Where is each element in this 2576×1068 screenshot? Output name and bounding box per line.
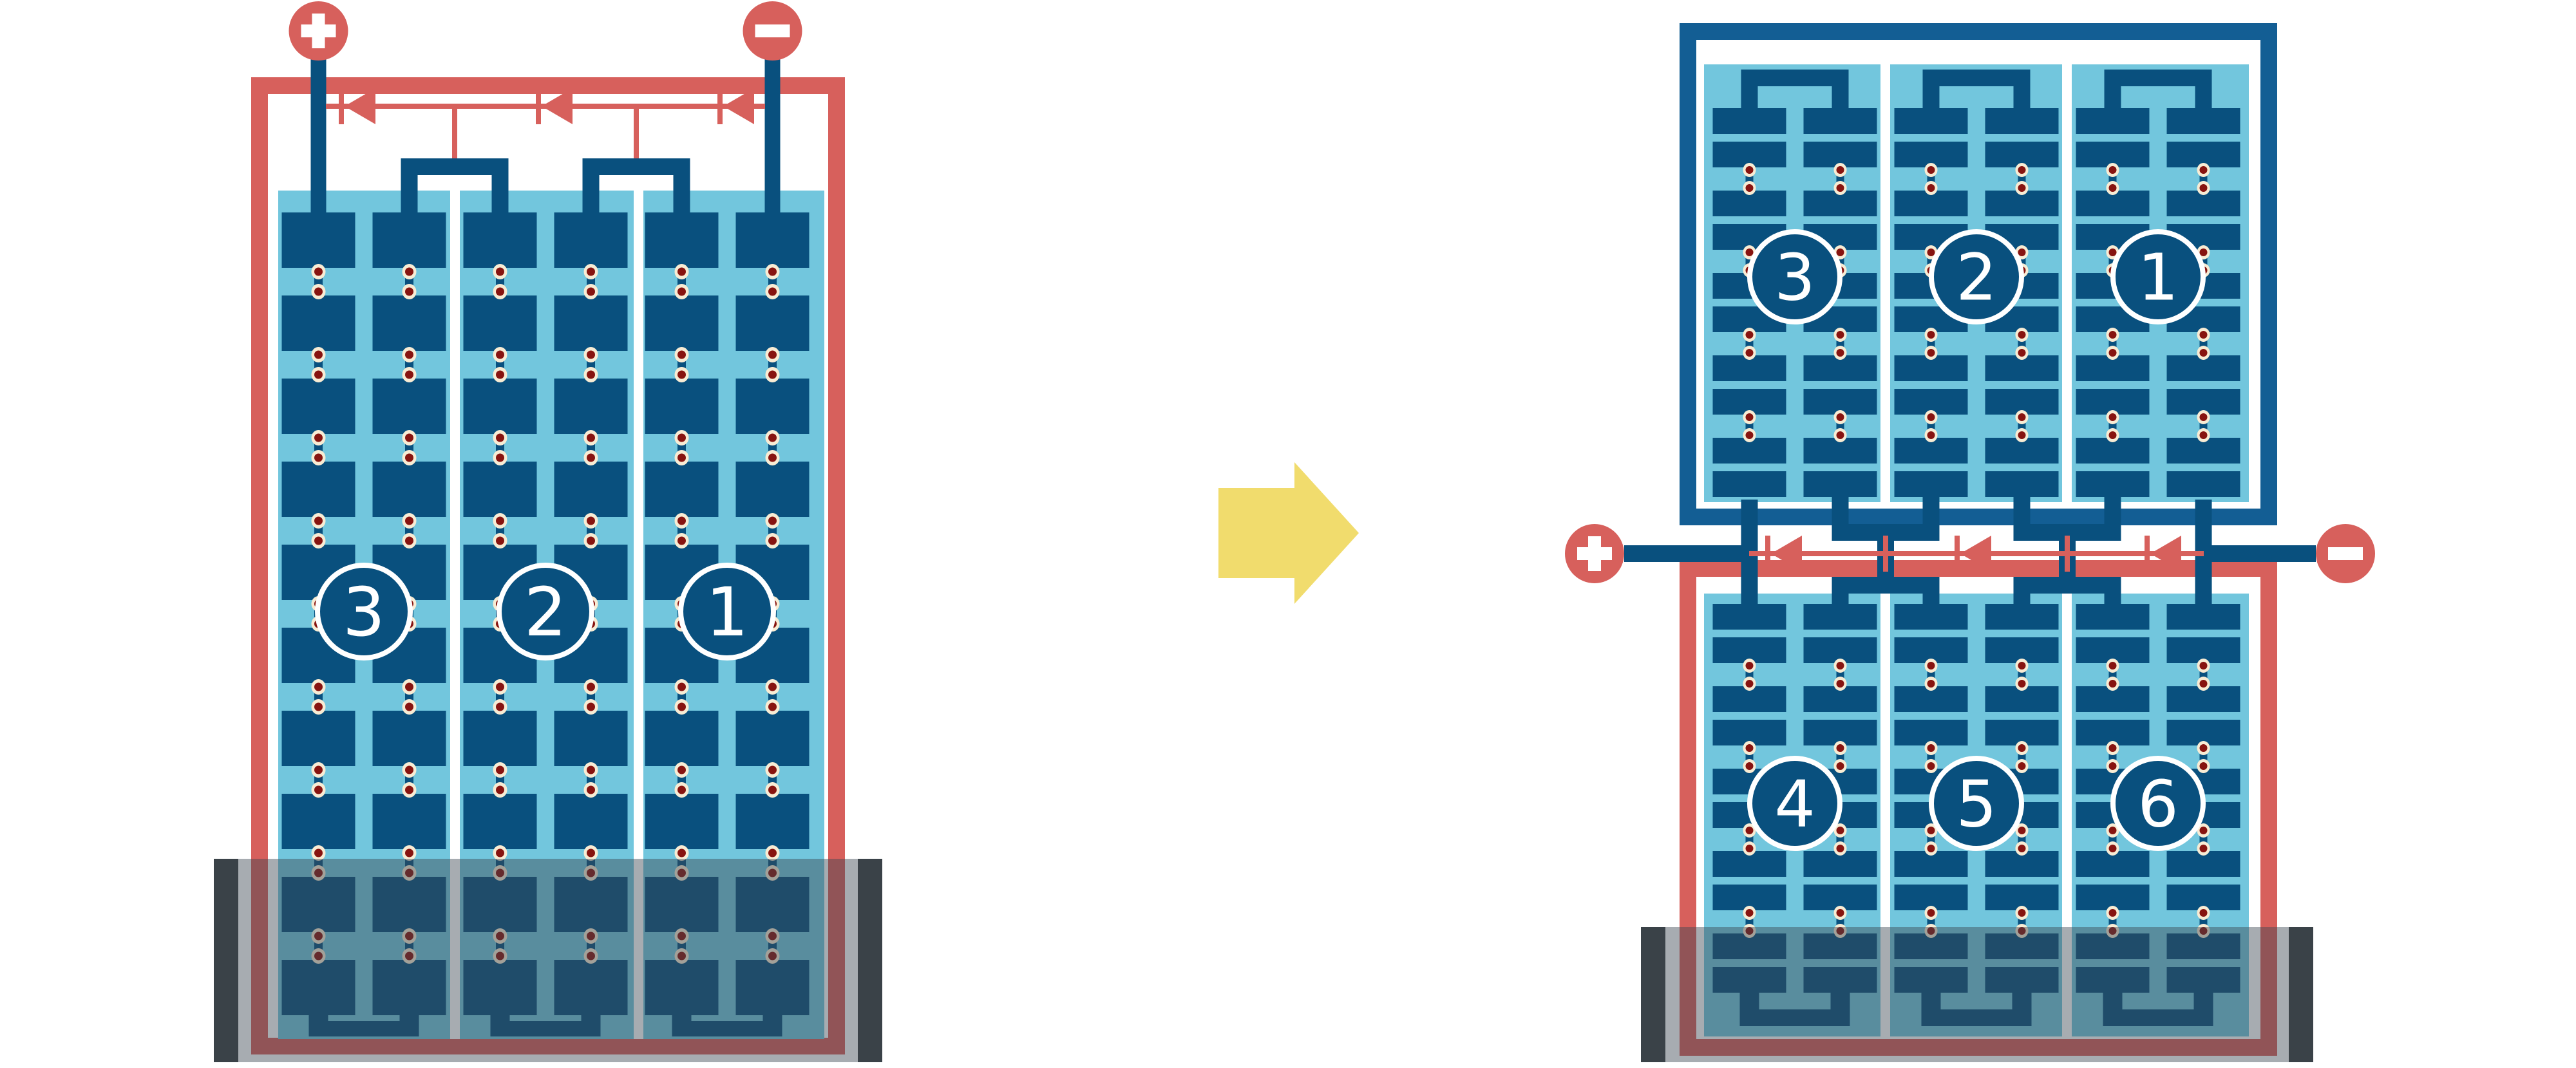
solar-cell <box>282 295 355 351</box>
solder-dot-icon <box>2018 662 2026 670</box>
string-number-label: 1 <box>706 573 748 651</box>
solder-dot-icon <box>2018 349 2026 357</box>
half-cell <box>2076 604 2150 630</box>
bypass-diode-cathode-bar <box>717 88 723 124</box>
half-cell <box>2167 108 2240 134</box>
plus-terminal-wire <box>311 58 327 227</box>
solder-dot-icon <box>1927 248 1935 256</box>
solder-dot-icon <box>2200 166 2208 174</box>
inter-string-bridge <box>492 174 509 221</box>
solder-dot-icon <box>2200 845 2208 852</box>
solder-dot-icon <box>1837 413 1844 421</box>
solder-dot-icon <box>1746 762 1754 770</box>
inter-string-bridge <box>401 174 418 221</box>
plus-icon <box>312 14 325 48</box>
solder-dot-icon <box>2109 248 2117 256</box>
arrow-head <box>1294 462 1359 604</box>
solder-dot-icon <box>587 849 595 857</box>
solder-dot-icon <box>587 517 595 525</box>
inter-string-bridge <box>674 174 690 221</box>
solder-dot-icon <box>1837 248 1844 256</box>
solder-dot-icon <box>314 766 323 774</box>
solder-dot-icon <box>496 268 504 276</box>
inter-string-bridge <box>2105 592 2121 606</box>
solder-dot-icon <box>677 268 686 276</box>
string-number-label: 2 <box>524 573 567 651</box>
solder-dot-icon <box>2109 662 2117 670</box>
solder-dot-icon <box>1746 662 1754 670</box>
solder-dot-icon <box>677 517 686 525</box>
arrow-body <box>1218 488 1296 578</box>
solder-dot-icon <box>405 766 413 774</box>
solar-cell <box>464 295 537 351</box>
half-cell <box>2076 471 2150 497</box>
solder-dot-icon <box>1927 680 1935 688</box>
solder-dot-icon <box>1927 184 1935 192</box>
solder-dot-icon <box>587 268 595 276</box>
solder-dot-icon <box>587 434 595 442</box>
solder-dot-icon <box>1746 845 1754 852</box>
solder-dot-icon <box>1837 744 1844 752</box>
solder-dot-icon <box>2109 413 2117 421</box>
solder-dot-icon <box>2018 762 2026 770</box>
bypass-diode-cathode-bar <box>339 88 344 124</box>
solder-dot-icon <box>768 351 777 359</box>
string-top-link <box>2105 84 2121 112</box>
solder-dot-icon <box>677 703 686 711</box>
solder-dot-icon <box>2109 331 2117 339</box>
solder-dot-icon <box>405 268 413 276</box>
diode-tap-wire <box>634 106 639 161</box>
solder-dot-icon <box>1746 248 1754 256</box>
solder-dot-icon <box>2018 413 2026 421</box>
solder-dot-icon <box>405 351 413 359</box>
solder-dot-icon <box>2200 680 2208 688</box>
solder-dot-icon <box>1837 349 1844 357</box>
solder-dot-icon <box>2018 248 2026 256</box>
string-number-label: 3 <box>1774 240 1815 315</box>
solder-dot-icon <box>2109 909 2117 917</box>
solder-dot-icon <box>1746 166 1754 174</box>
shade-overlay <box>1641 927 2313 1062</box>
string-top-link <box>1832 84 1849 112</box>
solder-dot-icon <box>1837 166 1844 174</box>
solder-dot-icon <box>1746 413 1754 421</box>
solder-dot-icon <box>2200 762 2208 770</box>
solar-cell <box>736 711 810 766</box>
half-cut-top-module: 321 <box>1688 32 2269 555</box>
solder-dot-icon <box>1927 413 1935 421</box>
solder-dot-icon <box>405 703 413 711</box>
half-cell <box>2076 108 2150 134</box>
solder-dot-icon <box>496 371 504 379</box>
solder-dot-icon <box>496 849 504 857</box>
solder-dot-icon <box>1746 184 1754 192</box>
solder-dot-icon <box>1927 431 1935 439</box>
inter-string-bridge <box>1832 577 1940 594</box>
inter-string-bridge <box>583 174 600 221</box>
half-cell <box>1713 471 1786 497</box>
inter-string-bridge <box>1923 497 1940 528</box>
diode-junction-tick <box>2065 536 2070 572</box>
solder-dot-icon <box>2200 744 2208 752</box>
solder-dot-icon <box>496 434 504 442</box>
bypass-diode-cathode-bar <box>2145 536 2150 572</box>
solder-dot-icon <box>1927 349 1935 357</box>
solder-dot-icon <box>496 288 504 296</box>
solder-dot-icon <box>405 849 413 857</box>
solar-cell <box>373 794 446 849</box>
solder-dot-icon <box>677 849 686 857</box>
half-cell <box>1804 604 1877 630</box>
solder-dot-icon <box>677 766 686 774</box>
string-number-label: 6 <box>2137 767 2179 842</box>
solder-dot-icon <box>496 703 504 711</box>
half-cell <box>1895 108 1968 134</box>
solder-dot-icon <box>1927 762 1935 770</box>
solar-cell <box>645 711 719 766</box>
solder-dot-icon <box>496 351 504 359</box>
solder-dot-icon <box>1927 845 1935 852</box>
solar-cell <box>736 295 810 351</box>
solder-dot-icon <box>587 683 595 691</box>
solar-cell <box>736 379 810 434</box>
minus-terminal-wire <box>765 58 781 227</box>
solder-dot-icon <box>2200 331 2208 339</box>
solder-dot-icon <box>1746 680 1754 688</box>
shade-band <box>214 859 882 1062</box>
solder-dot-icon <box>1927 744 1935 752</box>
solder-dot-icon <box>314 517 323 525</box>
inter-string-bridge <box>2014 577 2121 594</box>
solder-dot-icon <box>1746 431 1754 439</box>
string-number-label: 4 <box>1774 767 1815 842</box>
solder-dot-icon <box>1927 166 1935 174</box>
solar-cell <box>464 711 537 766</box>
solder-dot-icon <box>1837 909 1844 917</box>
solder-dot-icon <box>405 537 413 545</box>
solder-dot-icon <box>1927 331 1935 339</box>
solder-dot-icon <box>2200 349 2208 357</box>
solar-cell <box>373 295 446 351</box>
solder-dot-icon <box>768 786 777 794</box>
solder-dot-icon <box>496 683 504 691</box>
solder-dot-icon <box>768 683 777 691</box>
solder-dot-icon <box>314 371 323 379</box>
solder-dot-icon <box>1746 909 1754 917</box>
solder-dot-icon <box>1746 331 1754 339</box>
plus-terminal-wire <box>1624 545 1750 562</box>
half-cell <box>1804 471 1877 497</box>
solder-dot-icon <box>677 434 686 442</box>
solder-dot-icon <box>677 454 686 462</box>
solder-dot-icon <box>496 537 504 545</box>
inter-string-bridge <box>1832 592 1849 606</box>
solder-dot-icon <box>2200 909 2208 917</box>
solder-dot-icon <box>768 849 777 857</box>
solder-dot-icon <box>2109 680 2117 688</box>
solder-dot-icon <box>1837 331 1844 339</box>
solar-cell <box>373 711 446 766</box>
half-cell <box>1895 604 1968 630</box>
solder-dot-icon <box>314 288 323 296</box>
solder-dot-icon <box>496 766 504 774</box>
solder-dot-icon <box>1746 744 1754 752</box>
diode-tap-wire <box>452 106 457 161</box>
solder-dot-icon <box>314 537 323 545</box>
string-number-label: 2 <box>1956 240 1997 315</box>
shade-band <box>1641 927 2313 1062</box>
solder-dot-icon <box>587 454 595 462</box>
solar-cell <box>373 462 446 517</box>
solder-dot-icon <box>2018 431 2026 439</box>
solder-dot-icon <box>496 517 504 525</box>
solder-dot-icon <box>587 766 595 774</box>
solar-module-shading-diagram: 321321456 <box>0 0 2576 1068</box>
solar-cell <box>554 379 628 434</box>
solder-dot-icon <box>2018 184 2026 192</box>
solder-dot-icon <box>2109 762 2117 770</box>
half-cell <box>1985 604 2059 630</box>
solder-dot-icon <box>1837 827 1844 834</box>
solder-dot-icon <box>2018 909 2026 917</box>
solder-dot-icon <box>2200 413 2208 421</box>
solar-cell <box>554 462 628 517</box>
solder-dot-icon <box>314 434 323 442</box>
solar-cell <box>282 711 355 766</box>
solar-cell <box>645 295 719 351</box>
solder-dot-icon <box>1837 845 1844 852</box>
bypass-diode-cathode-bar <box>1765 536 1770 572</box>
string-top-link <box>2195 84 2212 112</box>
solder-dot-icon <box>314 268 323 276</box>
shade-overlay <box>214 859 882 1062</box>
solder-dot-icon <box>2200 431 2208 439</box>
solder-dot-icon <box>405 371 413 379</box>
solder-dot-icon <box>2018 845 2026 852</box>
solar-cell <box>464 462 537 517</box>
string-divider <box>2062 64 2072 502</box>
solder-dot-icon <box>314 351 323 359</box>
solder-dot-icon <box>2109 349 2117 357</box>
inter-string-bridge <box>1923 592 1940 606</box>
half-cell <box>1713 108 1786 134</box>
solder-dot-icon <box>768 268 777 276</box>
inter-string-bridge <box>583 158 690 175</box>
solder-dot-icon <box>314 786 323 794</box>
string-top-link <box>2014 84 2031 112</box>
inter-string-bridge <box>2105 497 2121 528</box>
solder-dot-icon <box>587 537 595 545</box>
solder-dot-icon <box>587 351 595 359</box>
solder-dot-icon <box>405 434 413 442</box>
minus-terminal-wire <box>2209 545 2316 562</box>
half-cell <box>1804 108 1877 134</box>
solar-cell <box>736 462 810 517</box>
solder-dot-icon <box>1746 827 1754 834</box>
solder-dot-icon <box>2018 827 2026 834</box>
solar-cell <box>373 379 446 434</box>
solder-dot-icon <box>768 288 777 296</box>
string-number-label: 5 <box>1956 767 1997 842</box>
solar-cell <box>736 794 810 849</box>
half-cell <box>1985 471 2059 497</box>
solder-dot-icon <box>2018 744 2026 752</box>
solder-dot-icon <box>587 371 595 379</box>
solar-cell <box>554 794 628 849</box>
solder-dot-icon <box>2109 184 2117 192</box>
inter-string-bridge <box>401 158 509 175</box>
solder-dot-icon <box>677 537 686 545</box>
solder-dot-icon <box>768 371 777 379</box>
solder-dot-icon <box>405 786 413 794</box>
half-cell <box>1713 604 1786 630</box>
solder-dot-icon <box>314 683 323 691</box>
solar-cell <box>282 794 355 849</box>
solder-dot-icon <box>768 434 777 442</box>
solar-cell <box>554 295 628 351</box>
solder-dot-icon <box>1927 662 1935 670</box>
solder-dot-icon <box>677 371 686 379</box>
bypass-diode-cathode-bar <box>536 88 541 124</box>
minus-icon <box>2328 547 2363 560</box>
solar-cell <box>554 711 628 766</box>
solder-dot-icon <box>1837 184 1844 192</box>
solder-dot-icon <box>2109 166 2117 174</box>
solder-dot-icon <box>314 849 323 857</box>
solder-dot-icon <box>587 786 595 794</box>
solder-dot-icon <box>2018 331 2026 339</box>
string-divider <box>1880 64 1890 502</box>
solder-dot-icon <box>768 517 777 525</box>
transform-arrow-icon <box>1218 462 1359 604</box>
solder-dot-icon <box>1746 349 1754 357</box>
solder-dot-icon <box>1837 662 1844 670</box>
minus-icon <box>755 24 790 37</box>
solar-cell <box>645 379 719 434</box>
solder-dot-icon <box>768 703 777 711</box>
string-number-label: 1 <box>2137 240 2179 315</box>
solder-dot-icon <box>496 454 504 462</box>
solder-dot-icon <box>677 683 686 691</box>
solder-dot-icon <box>2200 248 2208 256</box>
solder-dot-icon <box>496 786 504 794</box>
solder-dot-icon <box>2109 845 2117 852</box>
diagram-stage: 321321456 <box>0 0 2576 1068</box>
solder-dot-icon <box>768 454 777 462</box>
solder-dot-icon <box>2200 662 2208 670</box>
solder-dot-icon <box>2018 166 2026 174</box>
half-cell <box>1895 471 1968 497</box>
solder-dot-icon <box>768 766 777 774</box>
solder-dot-icon <box>405 517 413 525</box>
half-cell <box>2167 604 2240 630</box>
solder-dot-icon <box>677 786 686 794</box>
string-number-label: 3 <box>343 573 385 651</box>
solder-dot-icon <box>314 454 323 462</box>
solder-dot-icon <box>677 351 686 359</box>
string-top-link <box>1741 84 1758 112</box>
half-cell <box>1985 108 2059 134</box>
solder-dot-icon <box>405 288 413 296</box>
solder-dot-icon <box>405 454 413 462</box>
solder-dot-icon <box>2109 431 2117 439</box>
plus-icon <box>1588 536 1601 571</box>
solder-dot-icon <box>677 288 686 296</box>
solder-dot-icon <box>2109 744 2117 752</box>
solar-cell <box>645 794 719 849</box>
solder-dot-icon <box>2018 680 2026 688</box>
solder-dot-icon <box>587 288 595 296</box>
solder-dot-icon <box>314 703 323 711</box>
solar-cell <box>464 379 537 434</box>
solder-dot-icon <box>2200 184 2208 192</box>
solder-dot-icon <box>405 683 413 691</box>
inter-string-bridge <box>2014 592 2031 606</box>
solar-cell <box>282 462 355 517</box>
solder-dot-icon <box>1837 762 1844 770</box>
solder-dot-icon <box>2200 827 2208 834</box>
string-top-link <box>1923 84 1940 112</box>
inter-string-bridge <box>1832 497 1849 528</box>
solder-dot-icon <box>1927 827 1935 834</box>
solar-cell <box>464 794 537 849</box>
diode-junction-tick <box>1883 536 1888 572</box>
solder-dot-icon <box>587 703 595 711</box>
solder-dot-icon <box>768 537 777 545</box>
half-cell <box>2167 471 2240 497</box>
solar-cell <box>645 462 719 517</box>
solder-dot-icon <box>1927 909 1935 917</box>
inter-string-bridge <box>2014 497 2031 528</box>
solder-dot-icon <box>1837 680 1844 688</box>
solder-dot-icon <box>1837 431 1844 439</box>
bypass-diode-cathode-bar <box>1955 536 1960 572</box>
solder-dot-icon <box>2109 827 2117 834</box>
solar-cell <box>282 379 355 434</box>
